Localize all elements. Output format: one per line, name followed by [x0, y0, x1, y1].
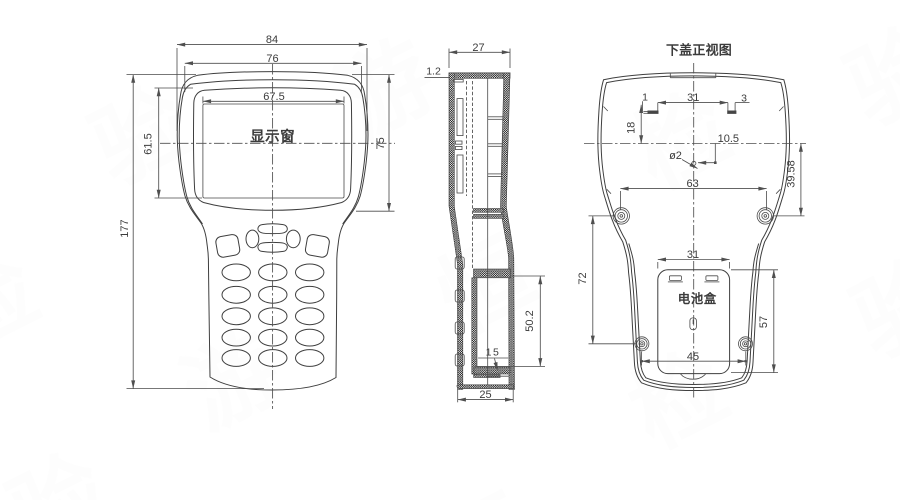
- svg-text:75: 75: [375, 137, 387, 149]
- svg-text:45: 45: [687, 351, 699, 363]
- svg-text:检: 检: [616, 335, 744, 468]
- svg-text:63: 63: [686, 178, 698, 190]
- svg-text:验: 验: [0, 438, 123, 500]
- svg-text:27: 27: [472, 42, 484, 54]
- svg-text:下盖正视图: 下盖正视图: [666, 43, 732, 58]
- svg-text:游: 游: [168, 316, 296, 449]
- svg-text:61.5: 61.5: [143, 133, 155, 154]
- svg-text:39.58: 39.58: [785, 160, 797, 188]
- svg-text:50.2: 50.2: [524, 310, 536, 331]
- svg-text:恒: 恒: [420, 479, 548, 500]
- svg-text:检: 检: [0, 237, 54, 370]
- svg-text:电池盒: 电池盒: [678, 291, 717, 306]
- svg-text:177: 177: [119, 219, 131, 237]
- svg-text:验: 验: [832, 11, 900, 144]
- svg-text:31: 31: [687, 249, 699, 261]
- svg-text:84: 84: [266, 34, 278, 46]
- svg-text:1.2: 1.2: [426, 65, 441, 77]
- svg-text:72: 72: [577, 272, 589, 284]
- svg-text:57: 57: [758, 316, 770, 328]
- svg-text:76: 76: [266, 53, 278, 65]
- svg-text:3: 3: [741, 93, 747, 105]
- svg-text:15: 15: [486, 347, 501, 359]
- svg-text:31: 31: [687, 92, 699, 104]
- svg-text:ø2: ø2: [669, 150, 682, 162]
- svg-text:1: 1: [642, 91, 648, 103]
- svg-text:验: 验: [77, 71, 205, 204]
- svg-text:25: 25: [479, 389, 491, 401]
- svg-text:恒: 恒: [422, 220, 550, 353]
- svg-text:67.5: 67.5: [263, 91, 284, 103]
- svg-text:18: 18: [625, 122, 637, 134]
- svg-text:验: 验: [838, 244, 900, 377]
- svg-text:10.5: 10.5: [718, 133, 739, 145]
